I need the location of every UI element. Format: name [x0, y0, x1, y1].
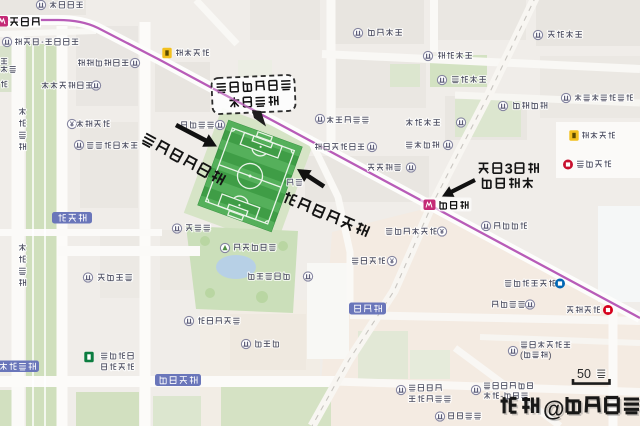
- svg-text:(: (: [520, 350, 523, 360]
- svg-text:¥: ¥: [440, 229, 444, 236]
- svg-text:): ): [549, 350, 552, 360]
- svg-text:50: 50: [577, 367, 591, 381]
- svg-text:¥: ¥: [390, 259, 394, 266]
- svg-text:3: 3: [505, 162, 513, 178]
- svg-text:@: @: [543, 397, 564, 422]
- svg-text:¥: ¥: [70, 122, 74, 129]
